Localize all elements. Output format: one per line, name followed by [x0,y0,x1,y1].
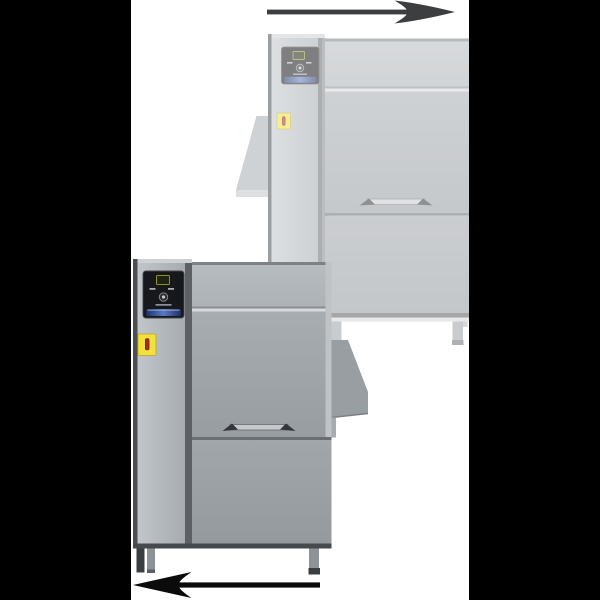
ghost-tower-left-edge [268,34,272,290]
fg-hood-seam-shadow [192,307,332,309]
ghost-body-top-edge [325,39,472,42]
ghost-handle-recess [367,199,425,205]
fg-handle-recess [230,425,288,431]
ghost-body-bottom-lip [325,318,472,322]
top-arrow-shaft [267,10,408,15]
fg-foot-right [309,568,321,575]
ghost-logo-center [299,67,302,70]
ghost-control-panel [282,47,320,84]
fg-tower-left-edge [133,259,138,548]
fg-hot-warning-icon [145,339,149,351]
fg-leg-left-front [137,549,145,573]
ghost-feed-table-edge [236,190,268,197]
fg-leg-left-rear [147,549,155,570]
ghost-lower-panel [325,216,472,313]
fg-door-panel [192,312,332,438]
fg-panel-indicator-left [150,288,156,290]
screenshot-canvas [0,0,600,600]
ghost-body-bottom-band [325,313,472,318]
letterbox-right [469,0,600,600]
fg-foot-left-rear [147,570,155,574]
fg-warning-label [138,334,156,356]
ghost-hood-seam-highlight [325,89,472,92]
ghost-panel-indicator-right [306,62,312,64]
ghost-panel-brand-text [293,74,307,76]
ghost-leg-bracket [463,322,468,328]
fg-panel-display [157,276,170,285]
ghost-foot-right [452,340,464,345]
ghost-door-bottom-seam [325,213,472,216]
fg-control-panel [143,271,184,318]
ghost-panel-indicator-left [287,62,293,64]
ghost-door-handle [360,199,433,206]
ghost-leg-left [331,322,342,341]
illustration [0,0,600,600]
fg-panel-brand-text [156,304,172,306]
ghost-hood-panel [325,42,472,87]
fg-blue-strip-highlight [148,310,180,311]
fg-panel-indicator-right [168,288,174,290]
fg-body-top-edge [192,262,332,265]
ghost-leg-right [453,322,464,341]
letterbox-left [0,0,131,600]
fg-hood-panel [192,265,332,307]
fg-tower-right-edge [185,263,192,544]
fg-door-handle [223,424,296,432]
fg-discharge-table-leg [332,418,337,438]
fg-leg-right [309,549,319,569]
ghost-warning-label [277,113,291,129]
ghost-panel-blue-strip [284,77,317,83]
fg-logo-center [162,295,165,298]
ghost-panel-display [293,52,305,60]
fg-body-bottom-band [133,544,332,549]
fg-hood-seam-highlight [192,309,332,312]
fg-door-bottom-seam [192,437,332,440]
ghost-tower-cap [268,34,325,39]
fg-lower-panel [192,440,332,544]
fg-tower-cap [133,259,192,264]
bottom-arrow-shaft [179,582,320,587]
ghost-door-panel [325,92,472,214]
ghost-hot-warning-icon [282,117,285,126]
ghost-hood-seam-shadow [325,87,472,89]
